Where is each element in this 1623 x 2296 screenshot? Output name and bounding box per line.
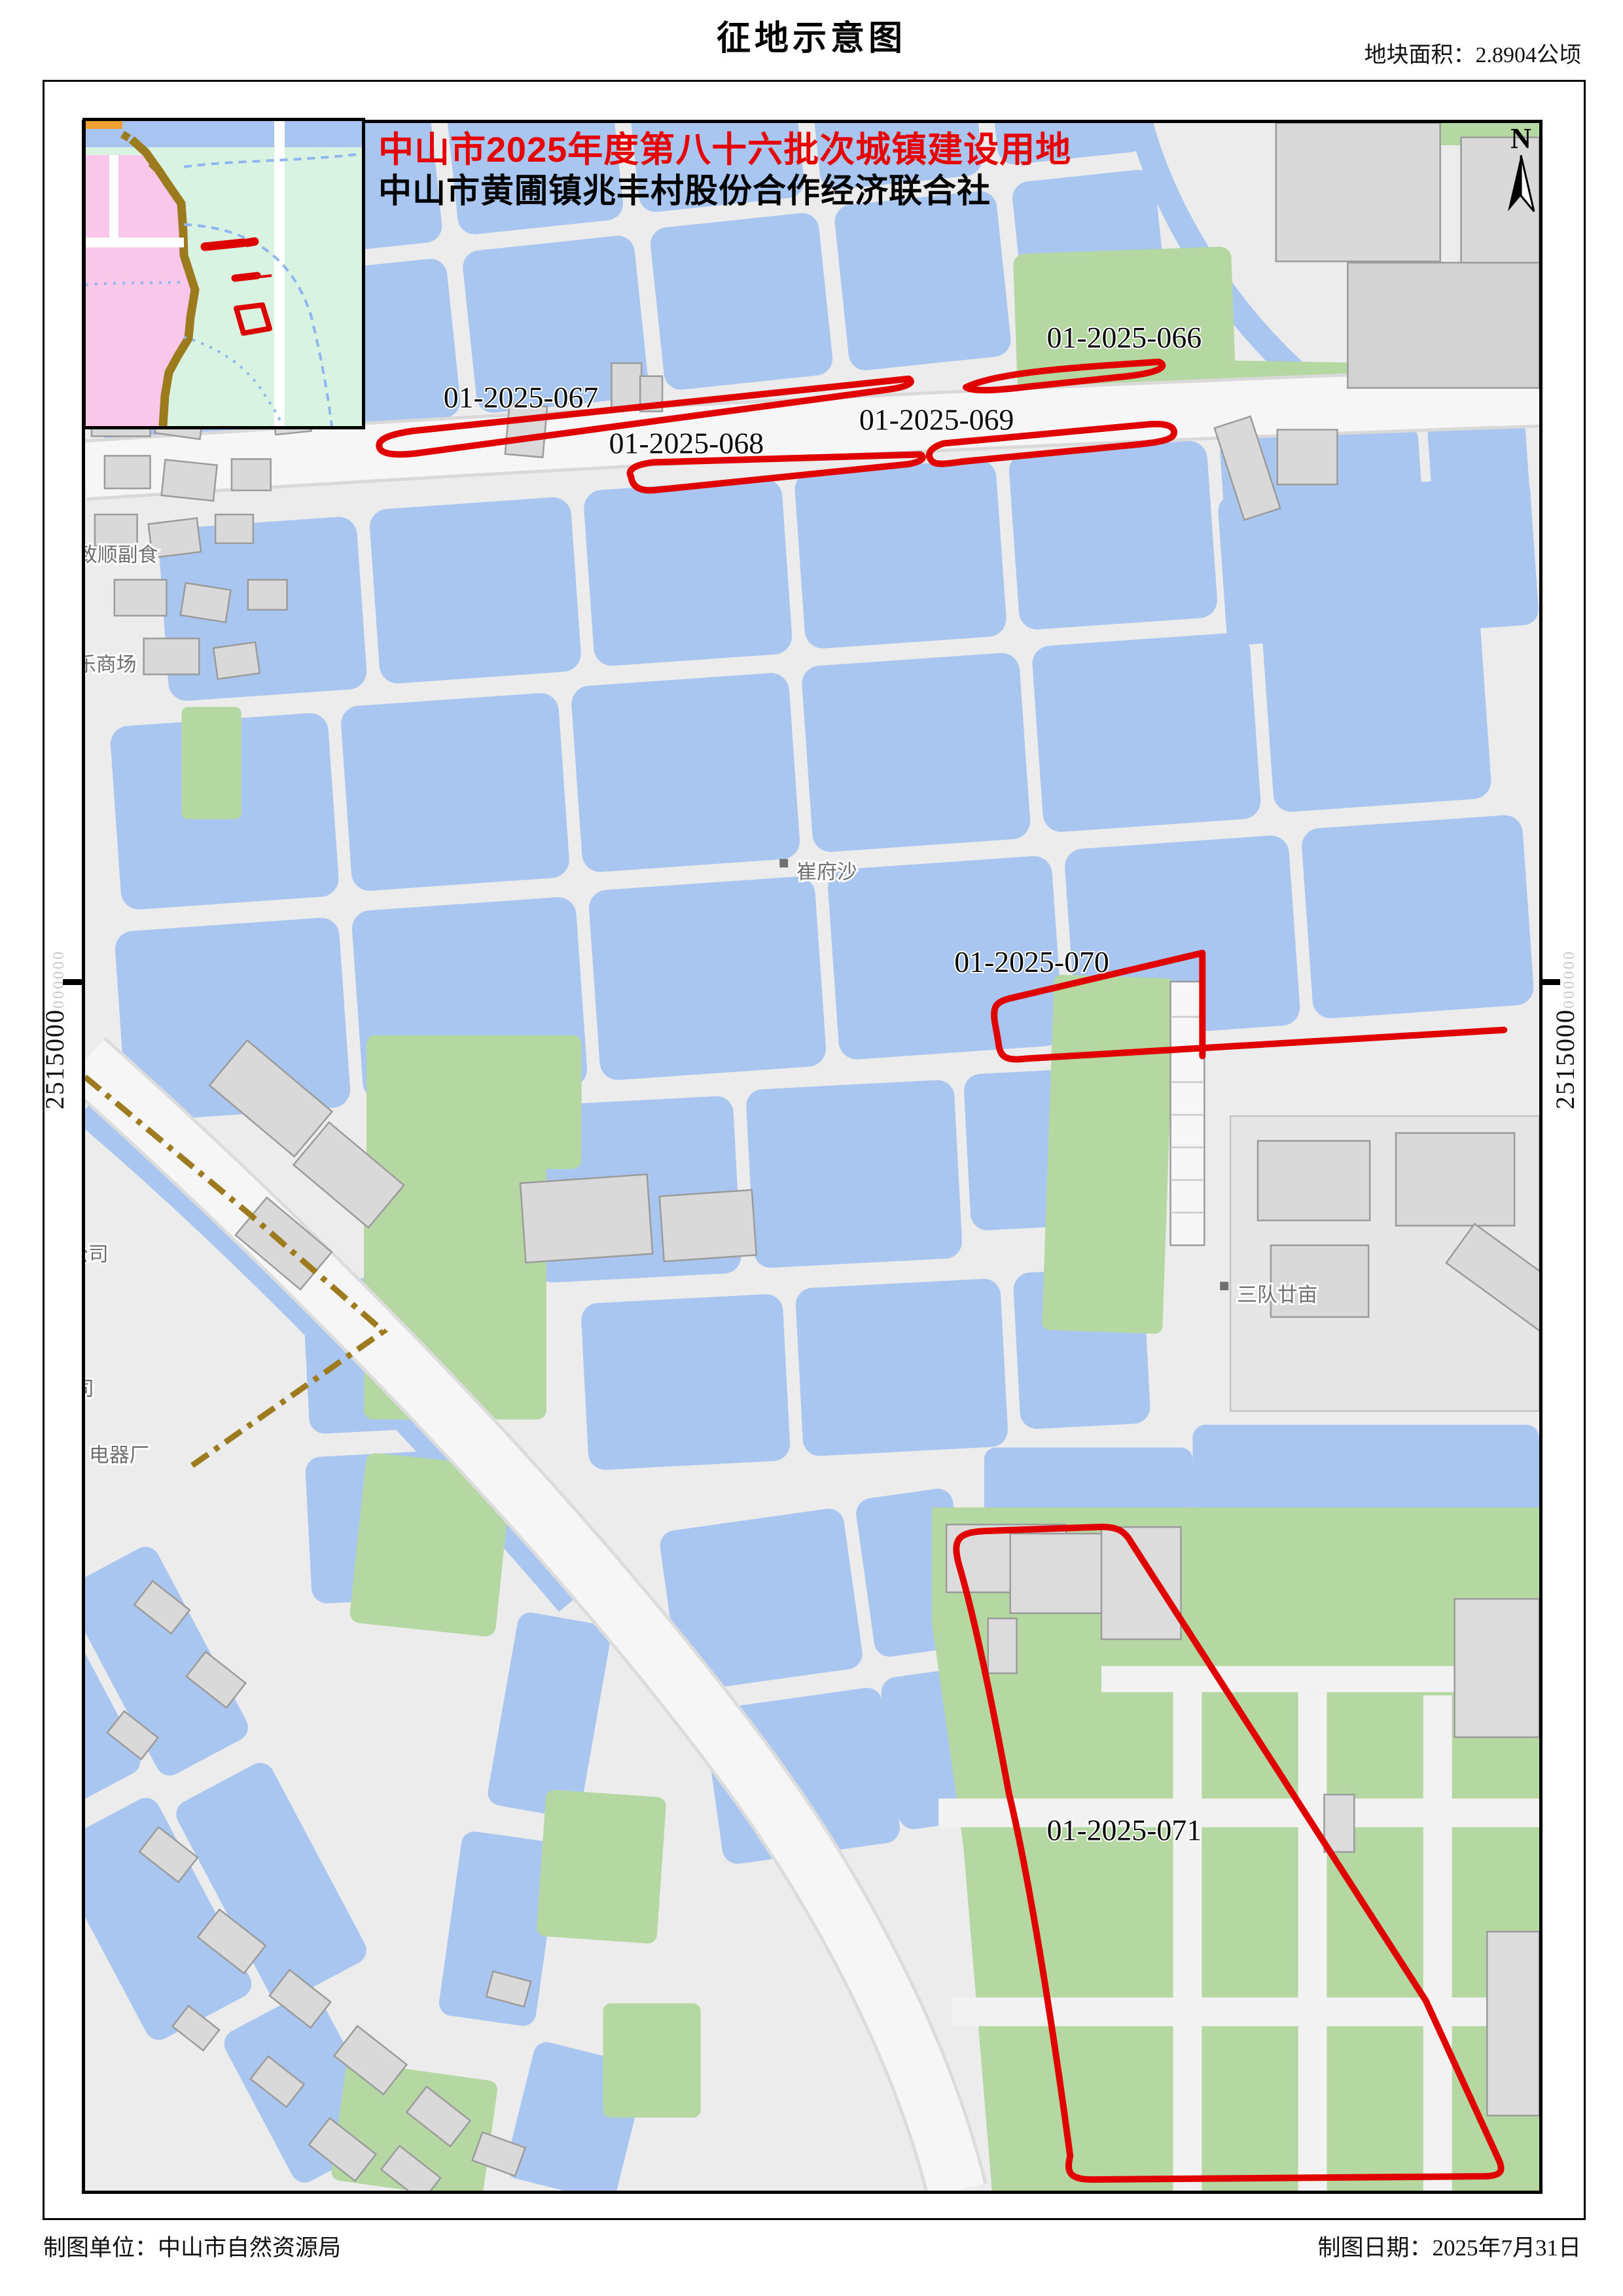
coordinate-label-right: 2515000000000 xyxy=(1550,950,1580,1109)
place-marker-cuifusha xyxy=(779,859,788,867)
map-svg: 01-2025-066 01-2025-067 01-2025-068 01-2… xyxy=(85,123,1539,2191)
coordinate-label-left: 2515000000000 xyxy=(39,950,70,1109)
place-label-cuifusha: 崔府沙 xyxy=(796,860,857,883)
map-maker-note: 制图单位：中山市自然资源局 xyxy=(43,2229,341,2263)
map-header-block: 中山市2025年度第八十六批次城镇建设用地 中山市黄圃镇兆丰村股份合作经济联合社 xyxy=(378,130,1071,211)
place-label-gongsi-b: 公司 xyxy=(85,1377,94,1400)
inset-svg xyxy=(86,121,362,426)
parcel-label-069: 01-2025-069 xyxy=(859,403,1014,436)
batch-title: 中山市2025年度第八十六批次城镇建设用地 xyxy=(378,130,1071,171)
grid-tick-left xyxy=(63,979,82,985)
map-date-note: 制图日期：2025年7月31日 xyxy=(1317,2229,1581,2263)
place-label-zhishun: 致顺副食 xyxy=(85,543,158,566)
place-label-sanduiershi: 三队廿亩 xyxy=(1237,1283,1317,1306)
north-arrow-label: N xyxy=(1500,122,1542,155)
parcel-label-067: 01-2025-067 xyxy=(444,381,599,414)
map-canvas: 01-2025-066 01-2025-067 01-2025-068 01-2… xyxy=(82,120,1543,2194)
north-arrow-icon xyxy=(1503,155,1539,218)
parcel-label-070: 01-2025-070 xyxy=(954,945,1109,978)
parcel-label-068: 01-2025-068 xyxy=(609,426,764,459)
parcel-label-066: 01-2025-066 xyxy=(1047,321,1202,354)
place-label-dianqichang: 电器厂 xyxy=(89,1444,150,1467)
parcel-label-071: 01-2025-071 xyxy=(1047,1814,1202,1847)
land-acquisition-map-page: 征地示意图 地块面积：2.8904公顷 xyxy=(0,0,1623,2296)
place-marker-sanduiershi xyxy=(1220,1282,1228,1290)
place-label-gongsi-a: 公司 xyxy=(85,1242,109,1265)
place-label-shangchang: 乐商场 xyxy=(85,653,137,675)
grid-tick-right xyxy=(1541,979,1560,985)
north-arrow: N xyxy=(1500,122,1542,221)
inset-locator-map xyxy=(82,118,365,429)
organization-title: 中山市黄圃镇兆丰村股份合作经济联合社 xyxy=(378,171,1071,211)
inset-orange-strip xyxy=(86,121,122,129)
parcel-area-note: 地块面积：2.8904公顷 xyxy=(1364,37,1582,69)
